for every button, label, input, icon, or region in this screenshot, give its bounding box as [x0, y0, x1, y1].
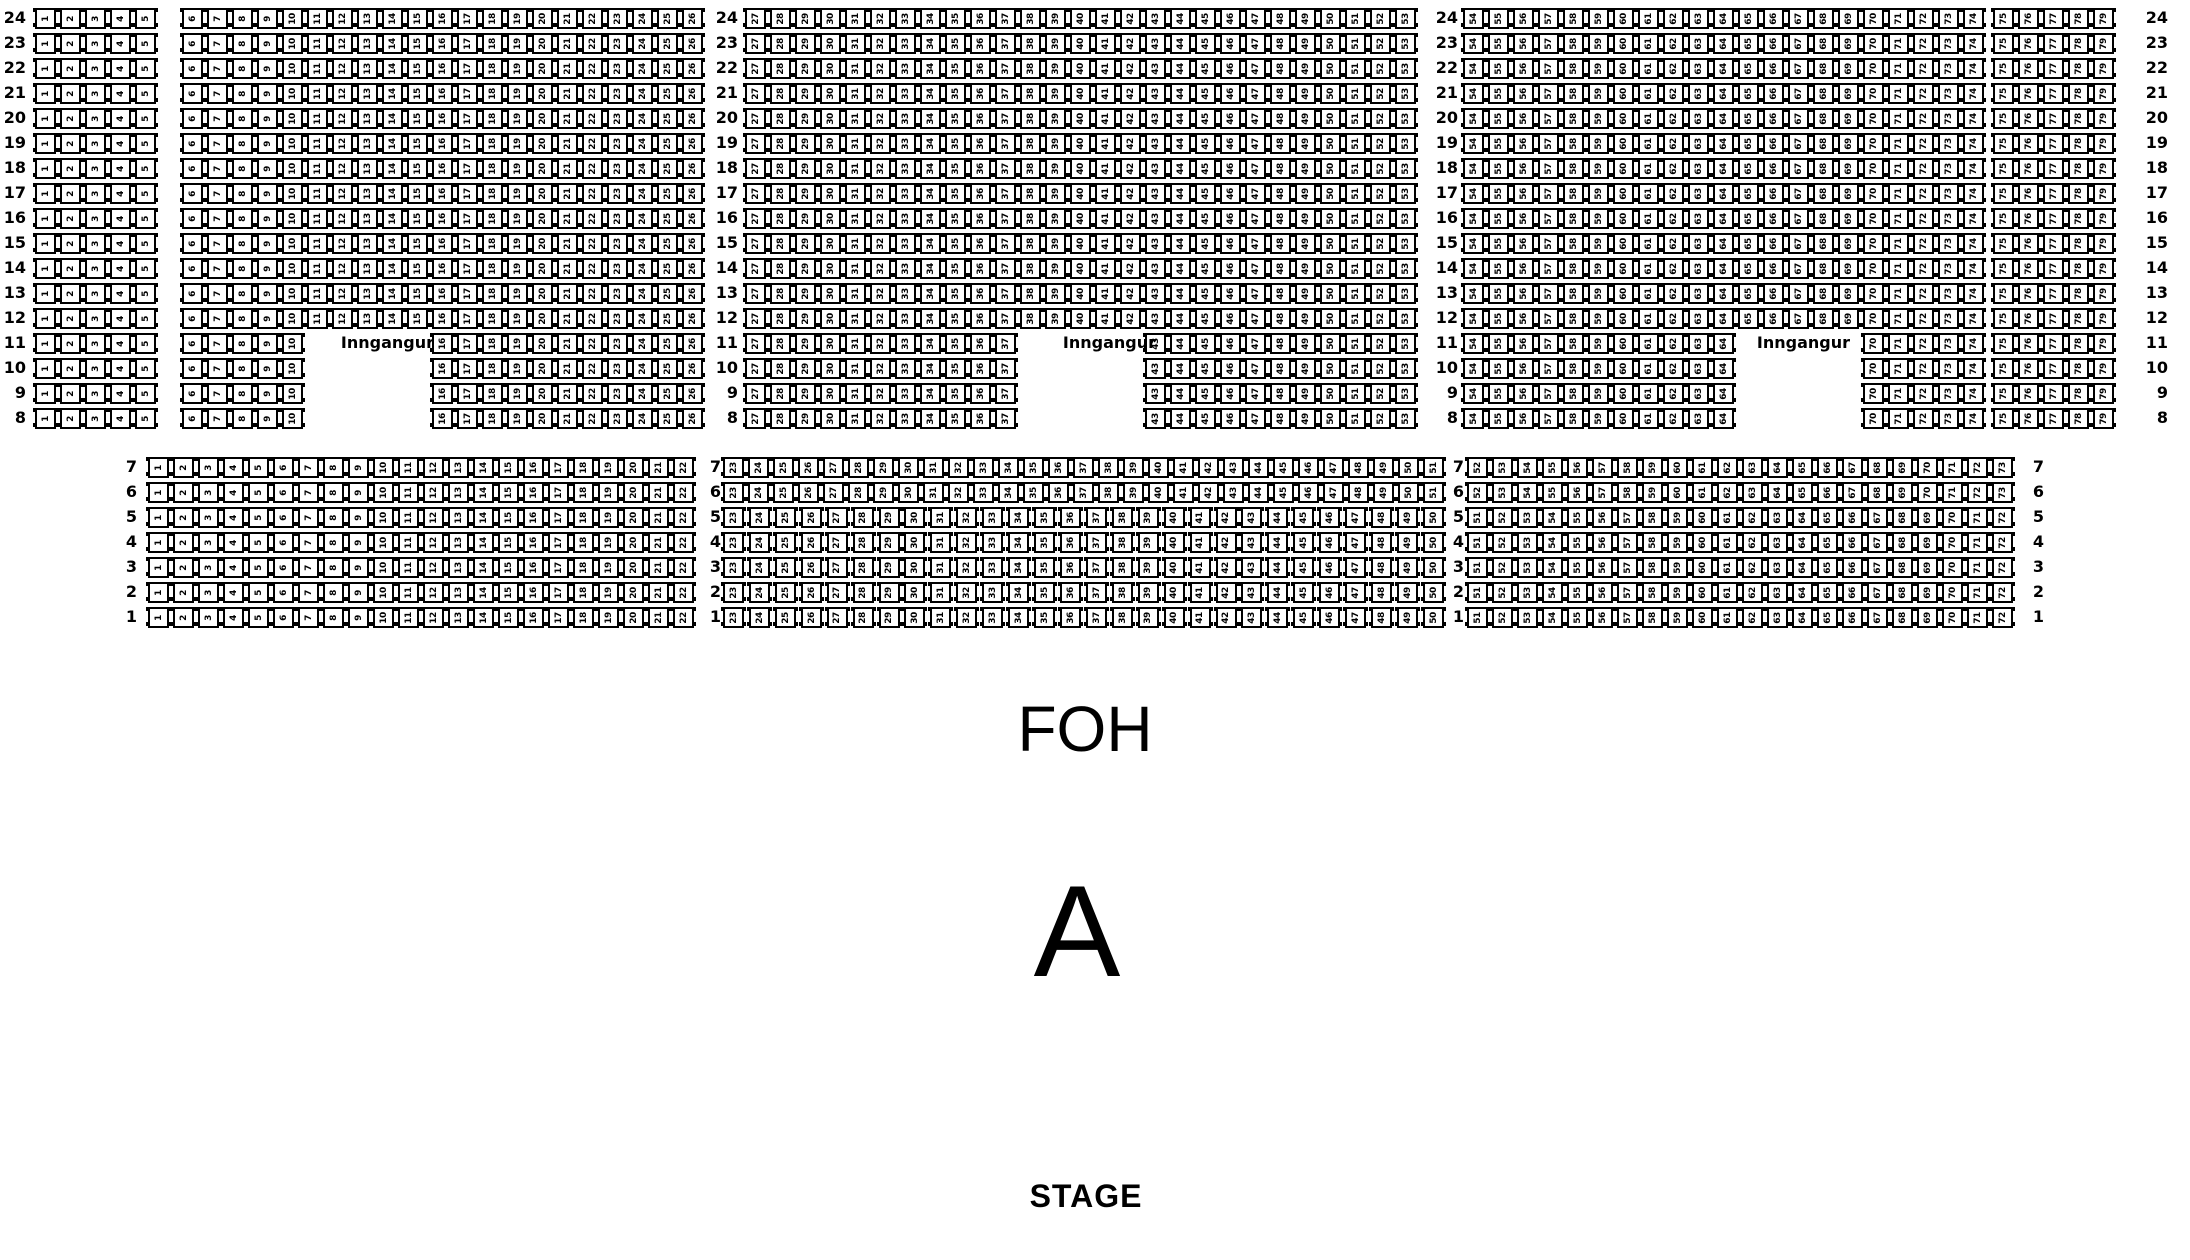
seat[interactable]: 2 [60, 333, 81, 354]
seat[interactable]: 27 [745, 208, 766, 229]
seat[interactable]: 45 [1195, 83, 1216, 104]
seat[interactable]: 53 [1395, 333, 1416, 354]
seat[interactable]: 16 [432, 358, 453, 379]
seat[interactable]: 55 [1488, 208, 1509, 229]
seat[interactable]: 24 [632, 408, 653, 429]
seat[interactable]: 28 [770, 383, 791, 404]
seat[interactable]: 37 [995, 333, 1016, 354]
seat[interactable]: 47 [1245, 358, 1266, 379]
seat[interactable]: 39 [1138, 557, 1159, 578]
seat[interactable]: 22 [582, 158, 603, 179]
seat[interactable]: 24 [748, 482, 769, 503]
seat[interactable]: 64 [1792, 557, 1813, 578]
seat[interactable]: 78 [2068, 83, 2089, 104]
seat[interactable]: 28 [770, 83, 791, 104]
seat[interactable]: 64 [1713, 33, 1734, 54]
seat[interactable]: 62 [1663, 83, 1684, 104]
seat[interactable]: 24 [749, 582, 770, 603]
seat[interactable]: 37 [995, 358, 1016, 379]
seat[interactable]: 43 [1145, 58, 1166, 79]
seat[interactable]: 12 [332, 83, 353, 104]
seat[interactable]: 22 [582, 408, 603, 429]
seat[interactable]: 60 [1613, 383, 1634, 404]
seat[interactable]: 51 [1345, 8, 1366, 29]
seat[interactable]: 11 [398, 482, 419, 503]
seat[interactable]: 77 [2043, 183, 2064, 204]
seat[interactable]: 74 [1963, 83, 1984, 104]
seat[interactable]: 50 [1320, 108, 1341, 129]
seat[interactable]: 71 [1888, 33, 1909, 54]
seat[interactable]: 13 [357, 108, 378, 129]
seat[interactable]: 39 [1045, 233, 1066, 254]
seat[interactable]: 50 [1320, 183, 1341, 204]
seat[interactable]: 51 [1345, 258, 1366, 279]
seat[interactable]: 49 [1397, 607, 1418, 628]
seat[interactable]: 25 [657, 308, 678, 329]
seat[interactable]: 67 [1842, 482, 1863, 503]
seat[interactable]: 9 [257, 58, 278, 79]
seat[interactable]: 59 [1667, 557, 1688, 578]
seat[interactable]: 30 [820, 8, 841, 29]
seat[interactable]: 24 [632, 83, 653, 104]
seat[interactable]: 44 [1170, 8, 1191, 29]
seat[interactable]: 10 [282, 208, 303, 229]
seat[interactable]: 36 [970, 358, 991, 379]
seat[interactable]: 2 [173, 482, 194, 503]
seat[interactable]: 63 [1742, 457, 1763, 478]
seat[interactable]: 45 [1273, 482, 1294, 503]
seat[interactable]: 22 [673, 482, 694, 503]
seat[interactable]: 77 [2043, 58, 2064, 79]
seat[interactable]: 20 [532, 358, 553, 379]
seat[interactable]: 78 [2068, 233, 2089, 254]
seat[interactable]: 62 [1717, 457, 1738, 478]
seat[interactable]: 63 [1688, 108, 1709, 129]
seat[interactable]: 15 [498, 557, 519, 578]
seat[interactable]: 46 [1220, 108, 1241, 129]
seat[interactable]: 61 [1638, 183, 1659, 204]
seat[interactable]: 12 [332, 8, 353, 29]
seat[interactable]: 70 [1863, 183, 1884, 204]
seat[interactable]: 57 [1538, 83, 1559, 104]
seat[interactable]: 45 [1293, 532, 1314, 553]
seat[interactable]: 43 [1145, 183, 1166, 204]
seat[interactable]: 48 [1371, 557, 1392, 578]
seat[interactable]: 12 [423, 582, 444, 603]
seat[interactable]: 23 [723, 482, 744, 503]
seat[interactable]: 16 [432, 158, 453, 179]
seat[interactable]: 62 [1663, 258, 1684, 279]
seat[interactable]: 45 [1293, 557, 1314, 578]
seat[interactable]: 62 [1663, 33, 1684, 54]
seat[interactable]: 49 [1295, 83, 1316, 104]
seat[interactable]: 67 [1788, 108, 1809, 129]
seat[interactable]: 3 [198, 557, 219, 578]
seat[interactable]: 58 [1563, 333, 1584, 354]
seat[interactable]: 59 [1667, 607, 1688, 628]
seat[interactable]: 46 [1298, 457, 1319, 478]
seat[interactable]: 48 [1270, 183, 1291, 204]
seat[interactable]: 58 [1563, 408, 1584, 429]
seat[interactable]: 74 [1963, 33, 1984, 54]
seat[interactable]: 59 [1588, 408, 1609, 429]
seat[interactable]: 25 [657, 33, 678, 54]
seat[interactable]: 61 [1717, 557, 1738, 578]
seat[interactable]: 63 [1767, 607, 1788, 628]
seat[interactable]: 2 [60, 408, 81, 429]
seat[interactable]: 23 [607, 8, 628, 29]
seat[interactable]: 42 [1120, 83, 1141, 104]
seat[interactable]: 60 [1613, 133, 1634, 154]
seat[interactable]: 22 [582, 133, 603, 154]
seat[interactable]: 43 [1145, 258, 1166, 279]
seat[interactable]: 6 [273, 582, 294, 603]
seat[interactable]: 20 [532, 333, 553, 354]
seat[interactable]: 41 [1095, 208, 1116, 229]
seat[interactable]: 9 [257, 208, 278, 229]
seat[interactable]: 45 [1195, 133, 1216, 154]
seat[interactable]: 75 [1993, 233, 2014, 254]
seat[interactable]: 2 [173, 582, 194, 603]
seat[interactable]: 59 [1588, 83, 1609, 104]
seat[interactable]: 31 [845, 208, 866, 229]
seat[interactable]: 45 [1195, 358, 1216, 379]
seat[interactable]: 79 [2093, 258, 2114, 279]
seat[interactable]: 38 [1020, 83, 1041, 104]
seat[interactable]: 60 [1613, 333, 1634, 354]
seat[interactable]: 75 [1993, 33, 2014, 54]
seat[interactable]: 40 [1070, 308, 1091, 329]
seat[interactable]: 40 [1164, 607, 1185, 628]
seat[interactable]: 72 [1992, 582, 2013, 603]
seat[interactable]: 25 [775, 582, 796, 603]
seat[interactable]: 13 [357, 8, 378, 29]
seat[interactable]: 53 [1395, 33, 1416, 54]
seat[interactable]: 24 [632, 33, 653, 54]
seat[interactable]: 61 [1692, 482, 1713, 503]
seat[interactable]: 61 [1717, 507, 1738, 528]
seat[interactable]: 73 [1938, 333, 1959, 354]
seat[interactable]: 48 [1270, 208, 1291, 229]
seat[interactable]: 69 [1838, 158, 1859, 179]
seat[interactable]: 20 [623, 482, 644, 503]
seat[interactable]: 17 [457, 208, 478, 229]
seat[interactable]: 48 [1270, 108, 1291, 129]
seat[interactable]: 43 [1241, 557, 1262, 578]
seat[interactable]: 23 [607, 308, 628, 329]
seat[interactable]: 24 [748, 457, 769, 478]
seat[interactable]: 1 [148, 557, 169, 578]
seat[interactable]: 60 [1613, 33, 1634, 54]
seat[interactable]: 56 [1513, 208, 1534, 229]
seat[interactable]: 74 [1963, 233, 1984, 254]
seat[interactable]: 71 [1888, 158, 1909, 179]
seat[interactable]: 3 [85, 8, 106, 29]
seat[interactable]: 47 [1345, 507, 1366, 528]
seat[interactable]: 65 [1738, 108, 1759, 129]
seat[interactable]: 60 [1692, 532, 1713, 553]
seat[interactable]: 17 [457, 33, 478, 54]
seat[interactable]: 51 [1467, 582, 1488, 603]
seat[interactable]: 8 [232, 208, 253, 229]
seat[interactable]: 18 [482, 158, 503, 179]
seat[interactable]: 76 [2018, 158, 2039, 179]
seat[interactable]: 76 [2018, 408, 2039, 429]
seat[interactable]: 69 [1838, 58, 1859, 79]
seat[interactable]: 65 [1817, 557, 1838, 578]
seat[interactable]: 53 [1517, 582, 1538, 603]
seat[interactable]: 75 [1993, 283, 2014, 304]
seat[interactable]: 17 [457, 108, 478, 129]
seat[interactable]: 30 [820, 58, 841, 79]
seat[interactable]: 9 [257, 83, 278, 104]
seat[interactable]: 18 [482, 208, 503, 229]
seat[interactable]: 59 [1588, 133, 1609, 154]
seat[interactable]: 64 [1767, 482, 1788, 503]
seat[interactable]: 1 [35, 308, 56, 329]
seat[interactable]: 47 [1245, 333, 1266, 354]
seat[interactable]: 20 [532, 133, 553, 154]
seat[interactable]: 25 [657, 233, 678, 254]
seat[interactable]: 34 [920, 33, 941, 54]
seat[interactable]: 41 [1190, 557, 1211, 578]
seat[interactable]: 1 [35, 58, 56, 79]
seat[interactable]: 74 [1963, 283, 1984, 304]
seat[interactable]: 34 [920, 8, 941, 29]
seat[interactable]: 23 [607, 83, 628, 104]
seat[interactable]: 43 [1241, 532, 1262, 553]
seat[interactable]: 37 [1073, 457, 1094, 478]
seat[interactable]: 23 [723, 582, 744, 603]
seat[interactable]: 24 [632, 358, 653, 379]
seat[interactable]: 35 [945, 383, 966, 404]
seat[interactable]: 6 [273, 607, 294, 628]
seat[interactable]: 47 [1245, 83, 1266, 104]
seat[interactable]: 27 [827, 532, 848, 553]
seat[interactable]: 18 [482, 83, 503, 104]
seat[interactable]: 29 [795, 233, 816, 254]
seat[interactable]: 13 [357, 233, 378, 254]
seat[interactable]: 13 [357, 33, 378, 54]
seat[interactable]: 43 [1145, 158, 1166, 179]
seat[interactable]: 67 [1788, 233, 1809, 254]
seat[interactable]: 6 [182, 333, 203, 354]
seat[interactable]: 33 [895, 233, 916, 254]
seat[interactable]: 7 [207, 133, 228, 154]
seat[interactable]: 14 [382, 258, 403, 279]
seat[interactable]: 39 [1045, 8, 1066, 29]
seat[interactable]: 56 [1513, 83, 1534, 104]
seat[interactable]: 58 [1642, 557, 1663, 578]
seat[interactable]: 63 [1688, 358, 1709, 379]
seat[interactable]: 26 [682, 308, 703, 329]
seat[interactable]: 53 [1395, 133, 1416, 154]
seat[interactable]: 60 [1613, 58, 1634, 79]
seat[interactable]: 72 [1913, 83, 1934, 104]
seat[interactable]: 6 [182, 33, 203, 54]
seat[interactable]: 18 [482, 308, 503, 329]
seat[interactable]: 79 [2093, 408, 2114, 429]
seat[interactable]: 24 [632, 183, 653, 204]
seat[interactable]: 14 [382, 83, 403, 104]
seat[interactable]: 13 [448, 507, 469, 528]
seat[interactable]: 67 [1867, 582, 1888, 603]
seat[interactable]: 27 [745, 58, 766, 79]
seat[interactable]: 8 [232, 283, 253, 304]
seat[interactable]: 58 [1642, 582, 1663, 603]
seat[interactable]: 78 [2068, 333, 2089, 354]
seat[interactable]: 51 [1345, 408, 1366, 429]
seat[interactable]: 2 [60, 233, 81, 254]
seat[interactable]: 22 [673, 507, 694, 528]
seat[interactable]: 43 [1145, 133, 1166, 154]
seat[interactable]: 75 [1993, 8, 2014, 29]
seat[interactable]: 52 [1370, 158, 1391, 179]
seat[interactable]: 39 [1045, 283, 1066, 304]
seat[interactable]: 28 [770, 258, 791, 279]
seat[interactable]: 45 [1195, 233, 1216, 254]
seat[interactable]: 18 [482, 383, 503, 404]
seat[interactable]: 19 [598, 482, 619, 503]
seat[interactable]: 61 [1638, 358, 1659, 379]
seat[interactable]: 59 [1642, 482, 1663, 503]
seat[interactable]: 57 [1538, 133, 1559, 154]
seat[interactable]: 26 [682, 208, 703, 229]
seat[interactable]: 47 [1323, 457, 1344, 478]
seat[interactable]: 10 [373, 507, 394, 528]
seat[interactable]: 43 [1145, 408, 1166, 429]
seat[interactable]: 35 [945, 133, 966, 154]
seat[interactable]: 2 [173, 607, 194, 628]
seat[interactable]: 45 [1195, 8, 1216, 29]
seat[interactable]: 3 [198, 507, 219, 528]
seat[interactable]: 45 [1195, 258, 1216, 279]
seat[interactable]: 29 [795, 208, 816, 229]
seat[interactable]: 25 [657, 8, 678, 29]
seat[interactable]: 73 [1938, 133, 1959, 154]
seat[interactable]: 39 [1045, 83, 1066, 104]
seat[interactable]: 34 [920, 308, 941, 329]
seat[interactable]: 37 [995, 258, 1016, 279]
seat[interactable]: 35 [1034, 582, 1055, 603]
seat[interactable]: 43 [1145, 33, 1166, 54]
seat[interactable]: 16 [523, 457, 544, 478]
seat[interactable]: 35 [1034, 507, 1055, 528]
seat[interactable]: 12 [332, 108, 353, 129]
seat[interactable]: 8 [232, 233, 253, 254]
seat[interactable]: 36 [1060, 532, 1081, 553]
seat[interactable]: 48 [1270, 258, 1291, 279]
seat[interactable]: 77 [2043, 108, 2064, 129]
seat[interactable]: 37 [1086, 582, 1107, 603]
seat[interactable]: 21 [557, 333, 578, 354]
seat[interactable]: 3 [85, 333, 106, 354]
seat[interactable]: 23 [607, 183, 628, 204]
seat[interactable]: 79 [2093, 33, 2114, 54]
seat[interactable]: 16 [432, 333, 453, 354]
seat[interactable]: 43 [1145, 208, 1166, 229]
seat[interactable]: 2 [60, 208, 81, 229]
seat[interactable]: 2 [60, 308, 81, 329]
seat[interactable]: 14 [382, 58, 403, 79]
seat[interactable]: 14 [382, 8, 403, 29]
seat[interactable]: 7 [298, 582, 319, 603]
seat[interactable]: 62 [1742, 607, 1763, 628]
seat[interactable]: 38 [1020, 33, 1041, 54]
seat[interactable]: 32 [870, 183, 891, 204]
seat[interactable]: 20 [532, 308, 553, 329]
seat[interactable]: 33 [895, 258, 916, 279]
seat[interactable]: 70 [1863, 358, 1884, 379]
seat[interactable]: 14 [382, 208, 403, 229]
seat[interactable]: 64 [1713, 208, 1734, 229]
seat[interactable]: 19 [507, 8, 528, 29]
seat[interactable]: 30 [904, 557, 925, 578]
seat[interactable]: 52 [1370, 408, 1391, 429]
seat[interactable]: 1 [35, 258, 56, 279]
seat[interactable]: 44 [1170, 233, 1191, 254]
seat[interactable]: 22 [582, 58, 603, 79]
seat[interactable]: 35 [945, 58, 966, 79]
seat[interactable]: 54 [1463, 8, 1484, 29]
seat[interactable]: 9 [257, 158, 278, 179]
seat[interactable]: 54 [1463, 83, 1484, 104]
seat[interactable]: 69 [1838, 83, 1859, 104]
seat[interactable]: 39 [1045, 308, 1066, 329]
seat[interactable]: 71 [1888, 208, 1909, 229]
seat[interactable]: 5 [135, 83, 156, 104]
seat[interactable]: 39 [1123, 457, 1144, 478]
seat[interactable]: 29 [879, 557, 900, 578]
seat[interactable]: 53 [1395, 208, 1416, 229]
seat[interactable]: 53 [1395, 8, 1416, 29]
seat[interactable]: 45 [1195, 58, 1216, 79]
seat[interactable]: 28 [770, 283, 791, 304]
seat[interactable]: 40 [1070, 133, 1091, 154]
seat[interactable]: 56 [1513, 183, 1534, 204]
seat[interactable]: 44 [1170, 383, 1191, 404]
seat[interactable]: 71 [1888, 283, 1909, 304]
seat[interactable]: 8 [323, 582, 344, 603]
seat[interactable]: 36 [970, 133, 991, 154]
seat[interactable]: 18 [573, 482, 594, 503]
seat[interactable]: 24 [749, 532, 770, 553]
seat[interactable]: 71 [1967, 532, 1988, 553]
seat[interactable]: 56 [1513, 258, 1534, 279]
seat[interactable]: 46 [1220, 8, 1241, 29]
seat[interactable]: 45 [1195, 33, 1216, 54]
seat[interactable]: 68 [1813, 308, 1834, 329]
seat[interactable]: 4 [223, 507, 244, 528]
seat[interactable]: 7 [207, 58, 228, 79]
seat[interactable]: 14 [382, 33, 403, 54]
seat[interactable]: 10 [373, 607, 394, 628]
seat[interactable]: 73 [1938, 108, 1959, 129]
seat[interactable]: 24 [632, 208, 653, 229]
seat[interactable]: 1 [148, 607, 169, 628]
seat[interactable]: 10 [282, 158, 303, 179]
seat[interactable]: 76 [2018, 8, 2039, 29]
seat[interactable]: 69 [1838, 308, 1859, 329]
seat[interactable]: 68 [1867, 457, 1888, 478]
seat[interactable]: 28 [770, 8, 791, 29]
seat[interactable]: 40 [1070, 58, 1091, 79]
seat[interactable]: 77 [2043, 208, 2064, 229]
seat[interactable]: 75 [1993, 58, 2014, 79]
seat[interactable]: 28 [848, 457, 869, 478]
seat[interactable]: 61 [1717, 532, 1738, 553]
seat[interactable]: 22 [582, 358, 603, 379]
